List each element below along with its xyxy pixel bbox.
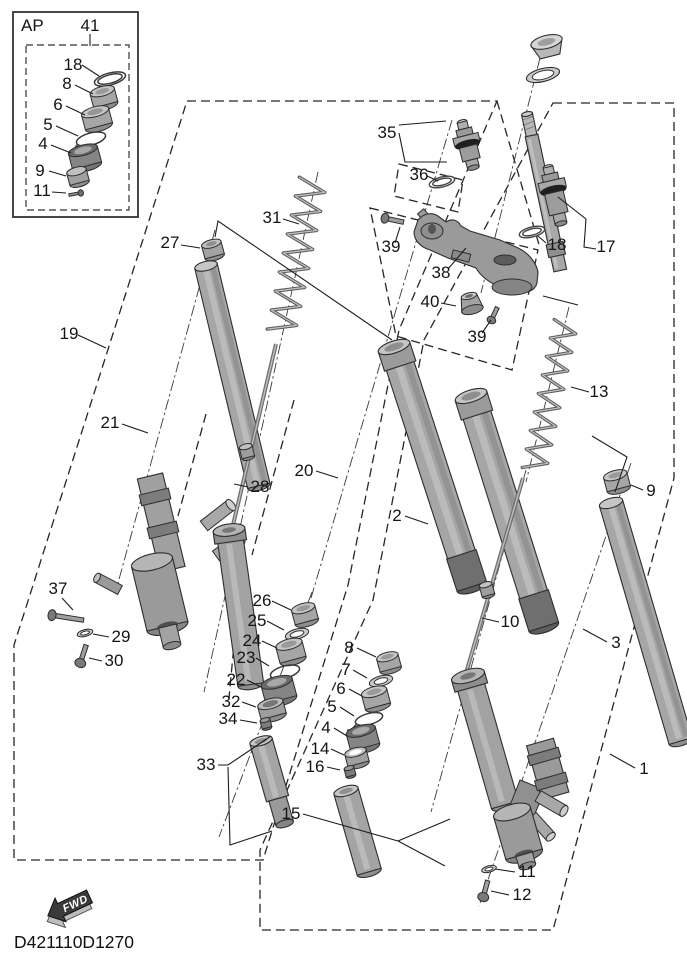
callout-28-label[interactable]: 28 <box>251 477 270 496</box>
leader-line <box>122 424 148 433</box>
callout-8-label[interactable]: 8 <box>344 638 353 657</box>
callout-35-label[interactable]: 35 <box>378 123 397 142</box>
leader-line <box>583 629 607 642</box>
callout-5-label[interactable]: 5 <box>43 115 52 134</box>
guide-bushing-24 <box>275 636 308 668</box>
callout-9-label[interactable]: 9 <box>35 161 44 180</box>
leader-line <box>262 641 277 648</box>
leader-line <box>491 891 509 895</box>
locknut-27 <box>201 237 226 262</box>
leader-line <box>357 648 376 657</box>
pinch-bolt-39-lower <box>486 306 502 326</box>
under-bracket-38 <box>414 209 538 295</box>
leader-line <box>272 601 291 610</box>
callout-17-label[interactable]: 17 <box>597 237 616 256</box>
callout-38-label[interactable]: 38 <box>432 263 451 282</box>
callout-40-label[interactable]: 40 <box>421 292 440 311</box>
dust-cap-40 <box>458 290 485 316</box>
slide-bushing-26 <box>290 600 319 629</box>
callout-31-label[interactable]: 31 <box>263 208 282 227</box>
damper-adjuster-35 <box>449 117 487 173</box>
bushing-6 <box>360 684 392 715</box>
leader-line <box>93 634 109 637</box>
outline-segment-c <box>178 414 206 516</box>
outer-tube-2 <box>453 385 561 637</box>
left-fork-leg-group <box>47 177 489 830</box>
leader-line <box>441 303 456 306</box>
ap-reference-box: AP <box>13 12 138 217</box>
callout-4-label[interactable]: 4 <box>321 718 330 737</box>
pinch-bolt-39-upper <box>380 213 404 228</box>
callout-34-label[interactable]: 34 <box>219 709 238 728</box>
leader-line <box>405 516 428 524</box>
inner-tube-3 <box>598 495 687 749</box>
leader-line <box>349 689 362 696</box>
callout-4-label[interactable]: 4 <box>38 134 47 153</box>
callout-6-label[interactable]: 6 <box>336 679 345 698</box>
leader-line <box>482 618 499 622</box>
callout-2-label[interactable]: 2 <box>392 506 401 525</box>
callout-30-label[interactable]: 30 <box>105 651 124 670</box>
bolt-30 <box>74 643 92 669</box>
callout-18-label[interactable]: 18 <box>548 235 567 254</box>
callout-25-label[interactable]: 25 <box>248 611 267 630</box>
bracket-35 <box>399 121 447 162</box>
leader-line <box>78 335 106 348</box>
fork-exploded-diagram: AP <box>0 0 687 960</box>
leader-line <box>327 767 340 770</box>
leader-line <box>331 749 344 755</box>
callout-18-label[interactable]: 18 <box>64 55 83 74</box>
fwd-arrow: FWD <box>40 885 98 934</box>
parts-diagram-page: AP <box>0 0 687 960</box>
bolt-12 <box>477 879 493 903</box>
leader-line <box>89 658 102 661</box>
drawing-code: D421110D1270 <box>14 932 134 952</box>
callout-39-label[interactable]: 39 <box>382 237 401 256</box>
leader-line <box>610 754 635 768</box>
callout-12-label[interactable]: 12 <box>513 885 532 904</box>
callout-9-label[interactable]: 9 <box>646 481 655 500</box>
leader-line <box>316 471 338 478</box>
washer-11 <box>481 864 497 874</box>
bushing-8 <box>376 650 403 677</box>
leader-line <box>571 387 589 392</box>
leader-line <box>62 598 73 610</box>
oring-18 <box>518 224 546 240</box>
callout-5-label[interactable]: 5 <box>327 697 336 716</box>
leader-line <box>240 720 257 723</box>
leader-line <box>242 702 256 707</box>
ap-label: AP <box>21 16 44 35</box>
axis-line <box>526 307 569 482</box>
oring-36 <box>428 174 456 190</box>
callout-14-label[interactable]: 14 <box>311 739 330 758</box>
callout-13-label[interactable]: 13 <box>590 382 609 401</box>
bracket-13 <box>543 296 578 305</box>
callout-19-label[interactable]: 19 <box>60 324 79 343</box>
callout-21-label[interactable]: 21 <box>101 413 120 432</box>
callout-6-label[interactable]: 6 <box>53 95 62 114</box>
leader-line <box>538 236 546 243</box>
callout-37-label[interactable]: 37 <box>49 579 68 598</box>
callout-15-label[interactable]: 15 <box>282 804 301 823</box>
callout-36-label[interactable]: 36 <box>410 165 429 184</box>
steering-stem-nut <box>529 32 565 61</box>
spacer-tube-15 <box>333 783 383 880</box>
callout-22-label[interactable]: 22 <box>227 670 246 689</box>
callout-3-label[interactable]: 3 <box>611 633 620 652</box>
callout-26-label[interactable]: 26 <box>253 591 272 610</box>
callout-11-label[interactable]: 11 <box>33 181 51 200</box>
callout-41-label[interactable]: 41 <box>81 16 100 35</box>
leader-line <box>334 728 347 736</box>
callout-8-label[interactable]: 8 <box>62 74 71 93</box>
leader-line <box>631 485 643 490</box>
callout-29-label[interactable]: 29 <box>112 627 131 646</box>
inner-tube-21 <box>194 259 271 493</box>
callout-20-label[interactable]: 20 <box>295 461 314 480</box>
callout-10-label[interactable]: 10 <box>501 612 520 631</box>
callout-16-label[interactable]: 16 <box>306 757 325 776</box>
leader-line <box>340 707 354 716</box>
callout-7-label[interactable]: 7 <box>341 660 350 679</box>
callout-1-label[interactable]: 1 <box>639 759 648 778</box>
leader-line <box>495 869 515 872</box>
leader-line <box>267 621 284 630</box>
fork-spring-13 <box>522 320 575 468</box>
stem-washer <box>525 65 561 86</box>
leader-line <box>181 245 200 248</box>
bushing-9 <box>602 467 631 496</box>
fork-spring-31 <box>267 177 324 329</box>
callout-27-label[interactable]: 27 <box>161 233 180 252</box>
callout-23-label[interactable]: 23 <box>237 648 256 667</box>
washer-29 <box>76 628 93 639</box>
outer-tube-20 <box>376 336 489 597</box>
callout-39-label[interactable]: 39 <box>468 327 487 346</box>
callout-11-label[interactable]: 11 <box>518 862 536 881</box>
leader-line <box>353 670 367 678</box>
callout-33-label[interactable]: 33 <box>197 755 216 774</box>
bolt-37 <box>47 609 84 625</box>
